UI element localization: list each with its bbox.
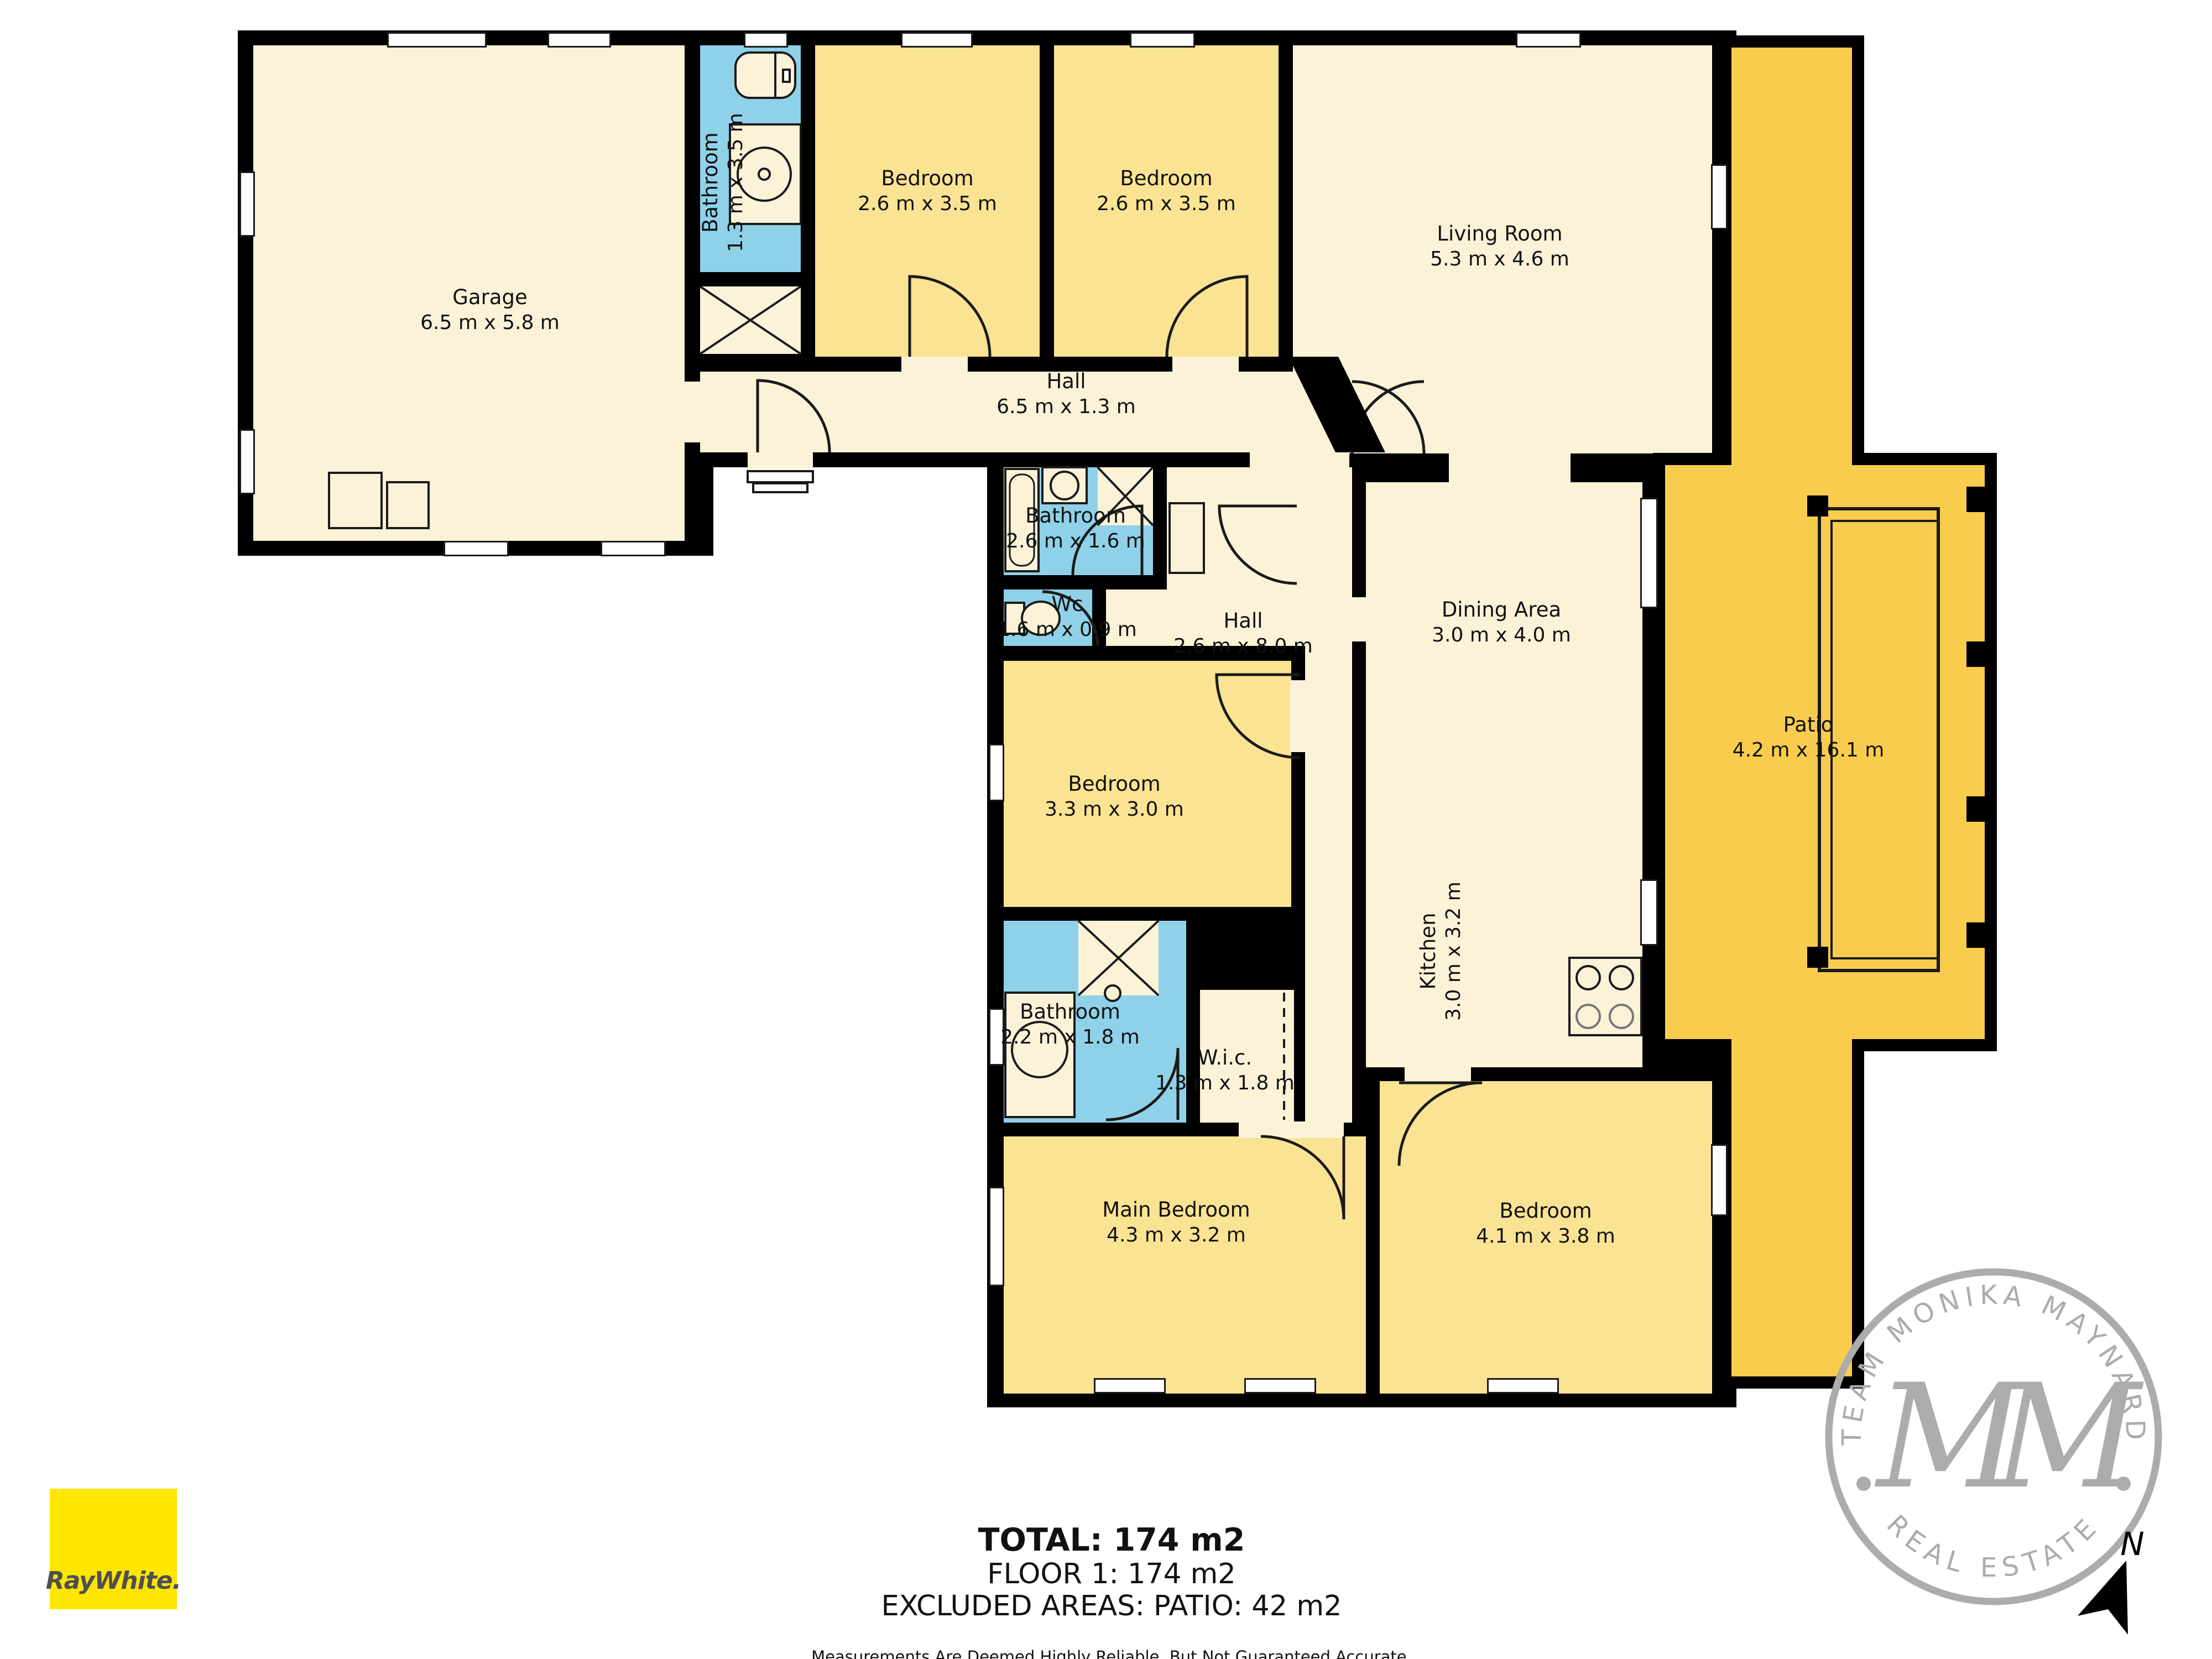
label-bathroom-top: Bathroom 1.3 m x 3.5 m — [697, 113, 748, 252]
excluded-areas: EXCLUDED AREAS: PATIO: 42 m2 — [811, 1590, 1412, 1623]
label-wc: Wc 1.6 m x 0.9 m — [998, 591, 1137, 642]
label-garage: Garage 6.5 m x 5.8 m — [420, 284, 560, 335]
area-summary: TOTAL: 174 m2 FLOOR 1: 174 m2 EXCLUDED A… — [811, 1522, 1412, 1659]
raywhite-logo: RayWhite. — [50, 1489, 177, 1609]
label-bathroom-mid: Bathroom 2.6 m x 1.6 m — [1006, 503, 1145, 554]
label-patio: Patio 4.2 m x 16.1 m — [1733, 712, 1885, 763]
label-living-room: Living Room 5.3 m x 4.6 m — [1430, 221, 1569, 272]
total-area: TOTAL: 174 m2 — [811, 1522, 1412, 1558]
floor-area: FLOOR 1: 174 m2 — [811, 1558, 1412, 1590]
label-dining-area: Dining Area 3.0 m x 4.0 m — [1432, 597, 1571, 648]
label-hall-mid: Hall 2.6 m x 8.0 m — [1173, 608, 1313, 659]
floor-plan-canvas: TEAM MONIKA MAYNARD REAL ESTATE MM N Gar… — [0, 0, 2212, 1659]
label-wic: W.i.c. 1.3 m x 1.8 m — [1155, 1045, 1295, 1095]
realtor-stamp: TEAM MONIKA MAYNARD REAL ESTATE MM — [1829, 1272, 2158, 1601]
raywhite-logo-text: RayWhite. — [46, 1567, 181, 1595]
label-hall-top: Hall 6.5 m x 1.3 m — [997, 368, 1136, 419]
label-bedroom-top-left: Bedroom 2.6 m x 3.5 m — [858, 165, 997, 216]
north-label: N — [2120, 1525, 2144, 1563]
label-bedroom-bottom: Bedroom 4.1 m x 3.8 m — [1476, 1198, 1615, 1249]
label-main-bedroom: Main Bedroom 4.3 m x 3.2 m — [1102, 1197, 1250, 1248]
label-bedroom-mid: Bedroom 3.3 m x 3.0 m — [1045, 771, 1184, 822]
label-bedroom-top-right: Bedroom 2.6 m x 3.5 m — [1097, 165, 1236, 216]
label-kitchen: Kitchen 3.0 m x 3.2 m — [1415, 881, 1466, 1021]
label-bathroom-low: Bathroom 2.2 m x 1.8 m — [1000, 999, 1140, 1050]
stamp-monogram: MM — [1875, 1354, 2144, 1521]
disclaimer: Measurements Are Deemed Highly Reliable,… — [811, 1647, 1412, 1659]
